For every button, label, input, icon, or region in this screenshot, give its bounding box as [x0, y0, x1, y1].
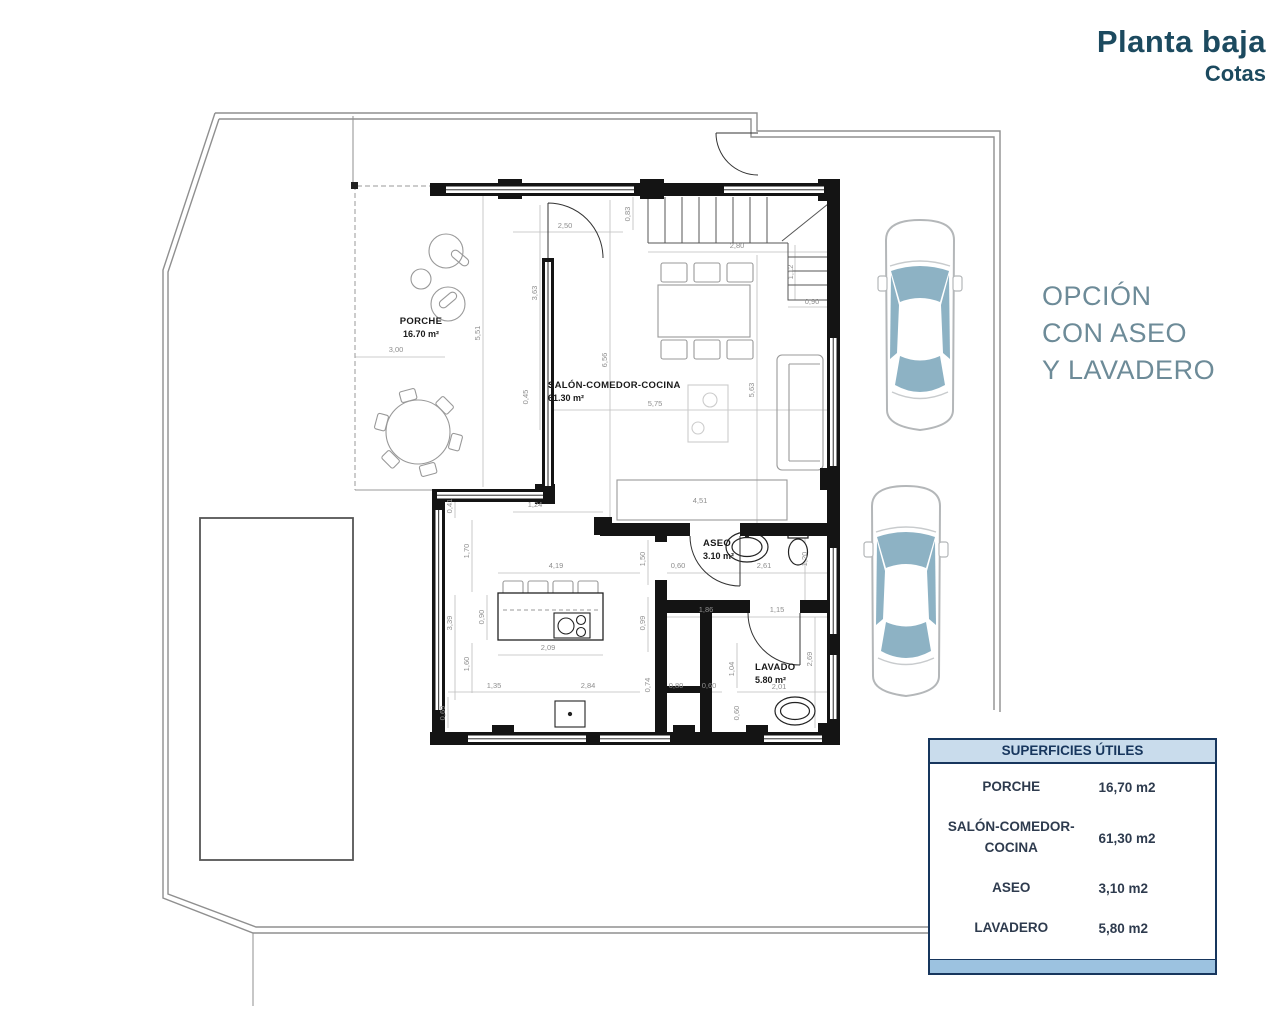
table-row: PORCHE16,70 m2: [930, 777, 1215, 798]
dimension-label: 0,45: [521, 390, 530, 405]
dimension-label: 1,60: [462, 657, 471, 672]
row-label: SALÓN-COMEDOR-COCINA: [930, 817, 1092, 859]
dimension-label: 0,60: [671, 561, 686, 570]
porch-door: [548, 203, 603, 258]
option-note-line: Y LAVADERO: [1042, 352, 1215, 389]
laundry-basin: [775, 697, 815, 725]
page-subtitle: Cotas: [1097, 61, 1266, 87]
dining-chair: [727, 263, 753, 282]
dimension-label: 3,39: [445, 616, 454, 631]
row-label: ASEO: [930, 878, 1092, 899]
room-area-label: 3.10 m²: [703, 551, 734, 561]
kitchen: [498, 593, 603, 727]
dimension-label: 0,80: [669, 681, 684, 690]
option-note-line: CON ASEO: [1042, 315, 1215, 352]
dimension-label: 0,74: [643, 678, 652, 693]
doors: [548, 133, 800, 665]
dimension-label: 1,86: [699, 605, 714, 614]
dimension-label: 0,41: [445, 499, 454, 514]
dimension-label: 4,51: [693, 496, 708, 505]
porch-round-table: [374, 388, 463, 477]
title-block: Planta baja Cotas: [1097, 24, 1266, 87]
entrance-door: [716, 133, 758, 175]
dimension-label: 1,04: [727, 662, 736, 677]
room-label: LAVADO: [755, 662, 796, 673]
dining-chair: [661, 340, 687, 359]
dimension-label: 1,24: [528, 500, 543, 509]
dimension-label: 1,70: [462, 544, 471, 559]
rug: [688, 385, 728, 442]
dimension-label: 4,19: [549, 561, 564, 570]
dimension-label: 1,35: [487, 681, 502, 690]
surfaces-table-footer: [930, 959, 1215, 973]
dining-table: [658, 285, 750, 337]
dimension-label: 2,80: [730, 241, 745, 250]
dining-chair: [694, 263, 720, 282]
dimension-label: 3,63: [530, 286, 539, 301]
dimension-label: 2,01: [772, 682, 787, 691]
dimension-label: 0,99: [638, 616, 647, 631]
washing-machine: [555, 701, 585, 727]
page: PORCHE16.70 m²SALÓN-COMEDOR-COCINA61.30 …: [0, 0, 1280, 1024]
pillar: [640, 179, 664, 199]
dimension-label: 0,83: [623, 207, 632, 222]
table-row: LAVADERO5,80 m2: [930, 918, 1215, 939]
lavado-door: [748, 613, 800, 665]
room-label: ASEO: [703, 538, 731, 549]
row-value: 5,80 m2: [1092, 921, 1215, 936]
dimension-label: 0,90: [805, 297, 820, 306]
pillar: [820, 468, 840, 490]
row-value: 3,10 m2: [1092, 881, 1215, 896]
porch-lounge-chairs: [411, 234, 470, 321]
car-bottom: [864, 486, 948, 696]
sofa: [777, 355, 823, 470]
dimension-label: 1,50: [638, 552, 647, 567]
dimension-label: 5,51: [473, 326, 482, 341]
option-note-line: OPCIÓN: [1042, 278, 1215, 315]
room-area-label: 16.70 m²: [403, 329, 439, 339]
dimension-label: 5,75: [648, 399, 663, 408]
dimension-label: 1,12: [786, 265, 795, 280]
dimension-label: 0,69: [438, 706, 447, 721]
dimension-label: 0,60: [702, 681, 717, 690]
dimension-label: 1,15: [770, 605, 785, 614]
pillar: [673, 725, 695, 745]
surfaces-table-header: SUPERFICIES ÚTILES: [930, 740, 1215, 764]
dining-chair: [727, 340, 753, 359]
cars: [864, 220, 962, 696]
dimension-label: 1,20: [800, 552, 809, 567]
row-value: 16,70 m2: [1092, 780, 1215, 795]
car-top: [878, 220, 962, 430]
cooktop: [554, 613, 590, 638]
dimension-label: 3,00: [389, 345, 404, 354]
table-row: SALÓN-COMEDOR-COCINA61,30 m2: [930, 817, 1215, 859]
dimension-label: 2,09: [541, 643, 556, 652]
page-title: Planta baja: [1097, 24, 1266, 60]
windows: [436, 187, 837, 743]
option-note: OPCIÓN CON ASEO Y LAVADERO: [1042, 278, 1215, 389]
dining-chair: [694, 340, 720, 359]
row-label: LAVADERO: [930, 918, 1092, 939]
dimension-label: 6,56: [600, 353, 609, 368]
room-label: SALÓN-COMEDOR-COCINA: [548, 379, 681, 391]
table-row: ASEO3,10 m2: [930, 878, 1215, 899]
row-label: PORCHE: [930, 777, 1092, 798]
dimension-label: 0,60: [732, 706, 741, 721]
room-label: PORCHE: [400, 316, 442, 327]
dimension-label: 2,50: [558, 221, 573, 230]
dimension-label: 2,61: [757, 561, 772, 570]
surfaces-table: SUPERFICIES ÚTILES PORCHE16,70 m2SALÓN-C…: [928, 738, 1217, 975]
dimension-label: 0,90: [477, 610, 486, 625]
dimension-labels: 2,500,832,801,120,903,005,513,636,565,63…: [389, 207, 820, 721]
dimension-label: 2,84: [581, 681, 596, 690]
dimension-label: 2,69: [805, 652, 814, 667]
dining-chair: [661, 263, 687, 282]
pool: [200, 518, 353, 860]
pillar: [594, 517, 612, 535]
room-area-label: 61.30 m²: [548, 393, 584, 403]
dimension-label: 5,63: [747, 383, 756, 398]
row-value: 61,30 m2: [1092, 831, 1215, 846]
surfaces-rows: PORCHE16,70 m2SALÓN-COMEDOR-COCINA61,30 …: [930, 764, 1215, 948]
dimension-lines: [355, 195, 836, 728]
